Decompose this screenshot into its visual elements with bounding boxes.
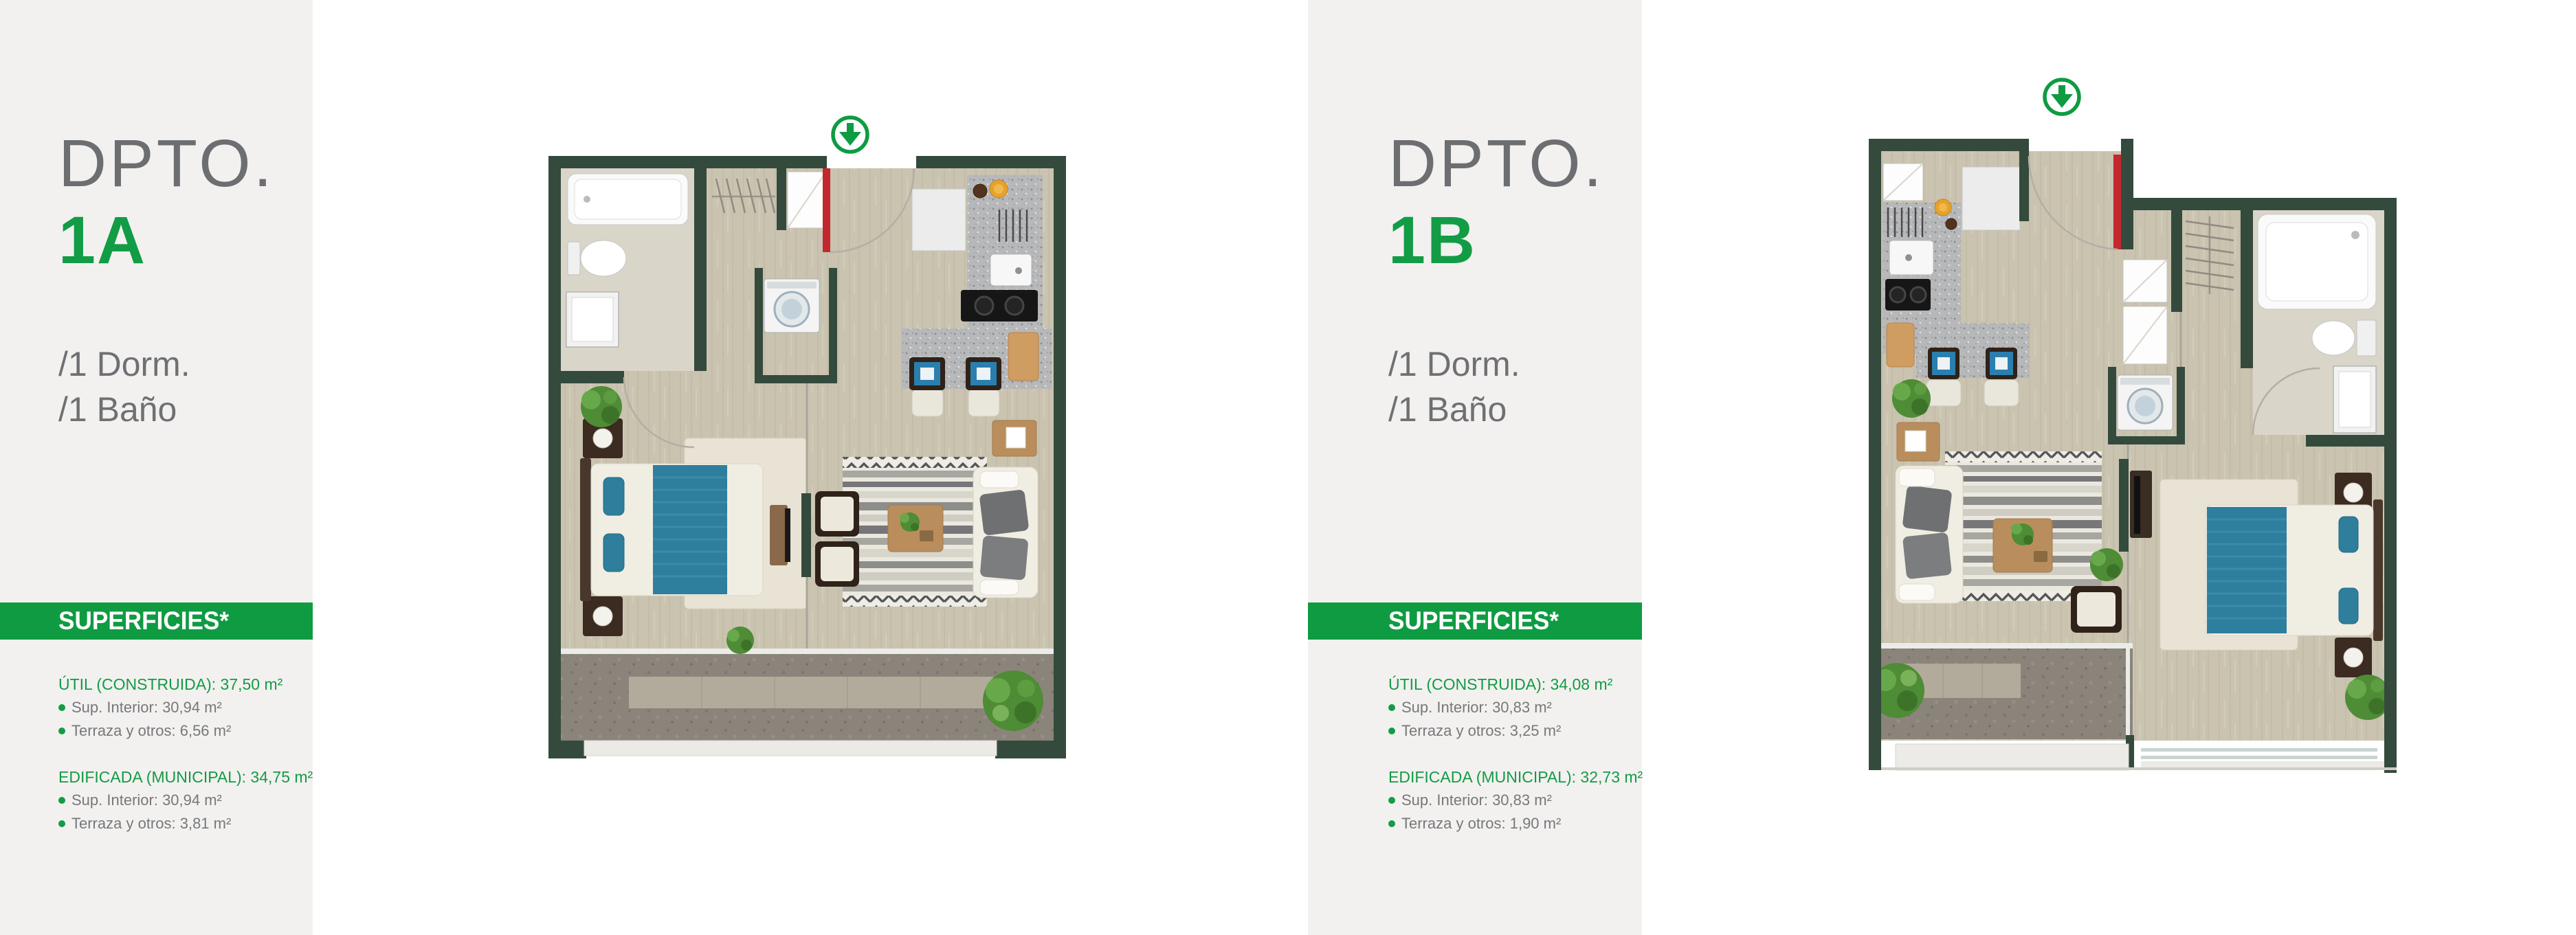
plant [2090,548,2123,581]
floor-plan-1b [1866,76,2399,780]
bullet-icon [1388,704,1395,711]
unit-title: DPTO. [58,129,275,198]
entrance-door [2113,155,2121,249]
util-item: Sup. Interior: 30,83 m² [1388,696,1636,719]
bullet-icon [58,728,65,734]
superficies-banner-label: SUPERFICIES* [58,607,229,635]
info-panel-1a: DPTO. 1A /1 Dorm. /1 Baño SUPERFICIES* Ú… [0,0,313,935]
washing-machine [2118,375,2173,430]
rooms-bath: /1 Baño [1388,387,1520,432]
plant [983,671,1043,731]
unit-title: DPTO. [1388,129,1605,198]
bedroom-window [2141,748,2384,770]
superficies-banner: SUPERFICIES* [0,602,313,640]
plant [2345,675,2390,720]
edificada-group: EDIFICADA (MUNICIPAL): 32,73 m² Sup. Int… [1388,765,1636,835]
circle-down-arrow-icon [2045,80,2079,114]
superficies-details: ÚTIL (CONSTRUIDA): 34,08 m² Sup. Interio… [1388,673,1636,858]
plant [1892,379,1931,418]
util-item: Sup. Interior: 30,94 m² [58,696,306,719]
util-item: Terraza y otros: 3,25 m² [1388,719,1636,743]
side-table [992,420,1036,456]
bar-stool [1984,348,2019,406]
floor-plan-1a [548,110,1066,763]
circle-down-arrow-icon [833,117,867,152]
plant [726,627,754,654]
bar-stool [966,357,1001,416]
tv-console [2130,471,2152,538]
rooms-bath: /1 Baño [58,387,190,432]
bullet-icon [58,820,65,827]
plant [581,386,622,427]
tv-console [770,505,790,565]
side-table [1897,423,1940,461]
util-header: ÚTIL (CONSTRUIDA): 34,08 m² [1388,673,1636,696]
unit-rooms: /1 Dorm. /1 Baño [58,341,190,432]
info-panel-1b: DPTO. 1B /1 Dorm. /1 Baño SUPERFICIES* Ú… [1308,0,1642,935]
coffee-table [1993,519,2052,572]
terrace-railing [1896,744,2129,770]
sofa [973,467,1038,598]
util-header: ÚTIL (CONSTRUIDA): 37,50 m² [58,673,306,696]
edificada-header: EDIFICADA (MUNICIPAL): 34,75 m² [58,765,306,789]
edificada-header: EDIFICADA (MUNICIPAL): 32,73 m² [1388,765,1636,789]
entrance-door [823,168,830,252]
armchair [815,541,859,587]
armchair [2071,586,2122,633]
washing-machine [764,279,819,333]
edificada-item: Terraza y otros: 3,81 m² [58,812,306,835]
coffee-table [888,505,943,552]
unit-number: 1A [58,206,146,275]
terrace-railing [584,741,997,756]
brochure-page: DPTO. 1A /1 Dorm. /1 Baño SUPERFICIES* Ú… [0,0,2576,935]
bullet-icon [1388,797,1395,804]
bullet-icon [1388,820,1395,827]
rooms-dorm: /1 Dorm. [58,341,190,387]
util-item: Terraza y otros: 6,56 m² [58,719,306,743]
edificada-group: EDIFICADA (MUNICIPAL): 34,75 m² Sup. Int… [58,765,306,835]
bar-stool [909,357,945,416]
sofa [1896,466,1963,603]
bullet-icon [1388,728,1395,734]
edificada-item: Terraza y otros: 1,90 m² [1388,812,1636,835]
unit-number: 1B [1388,206,1476,275]
bullet-icon [58,704,65,711]
superficies-banner-label: SUPERFICIES* [1388,607,1559,635]
bar-stool [1927,348,1961,406]
rooms-dorm: /1 Dorm. [1388,341,1520,387]
util-group: ÚTIL (CONSTRUIDA): 37,50 m² Sup. Interio… [58,673,306,743]
superficies-banner: SUPERFICIES* [1308,602,1642,640]
armchair [815,491,859,537]
util-group: ÚTIL (CONSTRUIDA): 34,08 m² Sup. Interio… [1388,673,1636,743]
edificada-item: Sup. Interior: 30,83 m² [1388,789,1636,812]
edificada-item: Sup. Interior: 30,94 m² [58,789,306,812]
bullet-icon [58,797,65,804]
unit-rooms: /1 Dorm. /1 Baño [1388,341,1520,432]
superficies-details: ÚTIL (CONSTRUIDA): 37,50 m² Sup. Interio… [58,673,306,858]
